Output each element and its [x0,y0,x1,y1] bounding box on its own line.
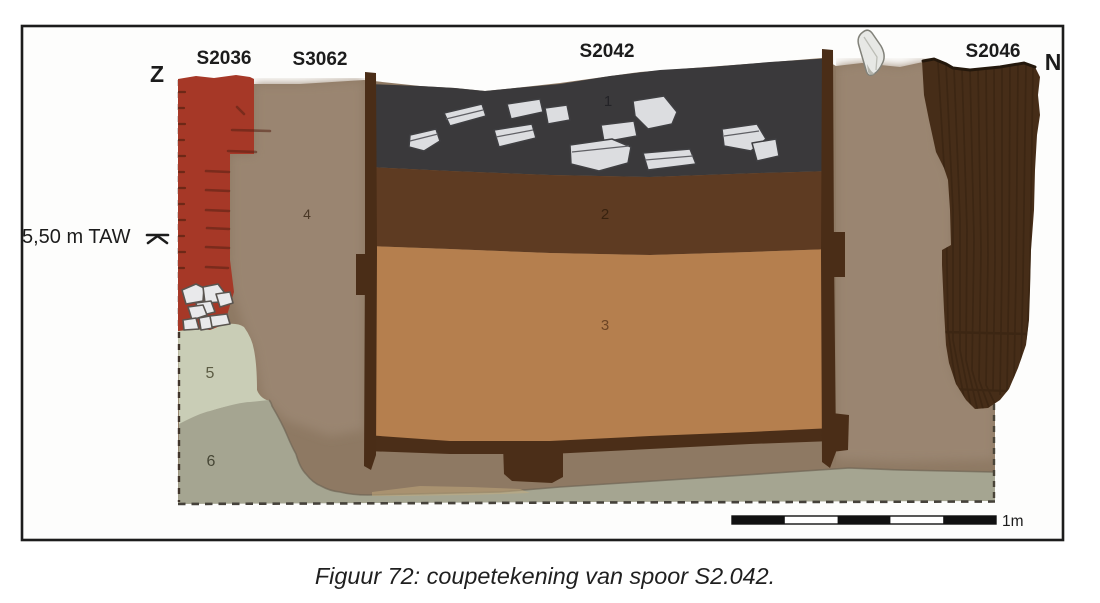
svg-text:S3062: S3062 [293,49,348,70]
svg-text:S2042: S2042 [580,41,635,62]
svg-text:4: 4 [303,206,311,222]
svg-text:S2046: S2046 [966,41,1021,62]
svg-text:5: 5 [206,365,215,382]
svg-text:3: 3 [601,317,609,334]
svg-text:Z: Z [150,61,164,87]
svg-text:5,50 m TAW: 5,50 m TAW [22,226,131,248]
svg-text:Figuur 72: coupetekening van s: Figuur 72: coupetekening van spoor S2.04… [315,563,775,589]
svg-text:1m: 1m [1002,513,1024,530]
svg-text:2: 2 [601,206,609,223]
svg-text:N: N [1045,49,1062,75]
svg-text:6: 6 [207,453,216,470]
svg-text:1: 1 [604,93,612,110]
svg-text:S2036: S2036 [197,48,252,69]
